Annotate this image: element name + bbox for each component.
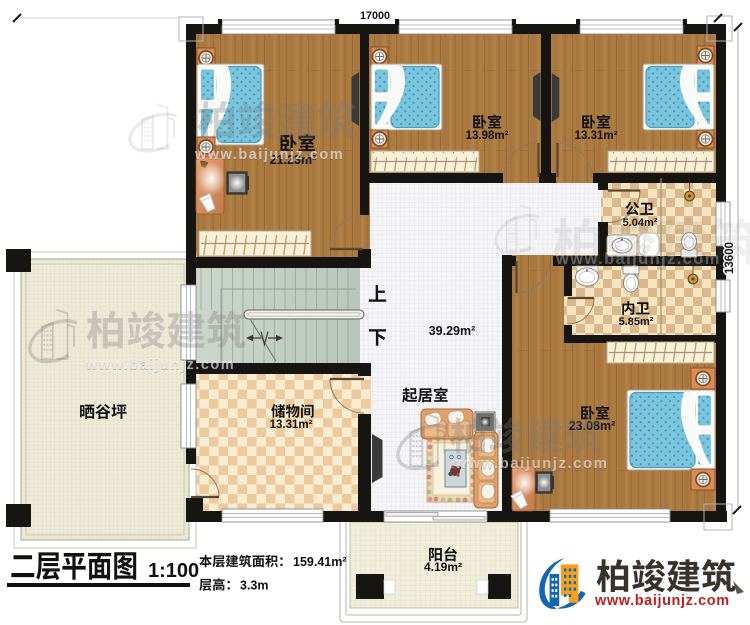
svg-text:13.31m²: 13.31m² (575, 130, 618, 142)
svg-text:www.baijunjz.com: www.baijunjz.com (555, 250, 721, 268)
svg-text:5.85m²: 5.85m² (619, 316, 654, 328)
svg-text:17000: 17000 (360, 10, 390, 22)
svg-text:www.baijunjz.com: www.baijunjz.com (194, 147, 344, 163)
svg-text:1:100: 1:100 (148, 560, 199, 582)
svg-text:159.41m²: 159.41m² (293, 555, 347, 569)
svg-text:4.19m²: 4.19m² (424, 560, 462, 574)
svg-text:13.98m²: 13.98m² (466, 130, 509, 142)
svg-text:3.3m: 3.3m (240, 579, 269, 593)
svg-text:39.29m²: 39.29m² (429, 324, 476, 338)
svg-text:www.baijunjz.com: www.baijunjz.com (454, 455, 608, 472)
svg-text:13.31m²: 13.31m² (270, 419, 313, 431)
svg-text:www.baijunjz.com: www.baijunjz.com (594, 593, 730, 609)
svg-text:www.baijunjz.com: www.baijunjz.com (85, 357, 235, 373)
